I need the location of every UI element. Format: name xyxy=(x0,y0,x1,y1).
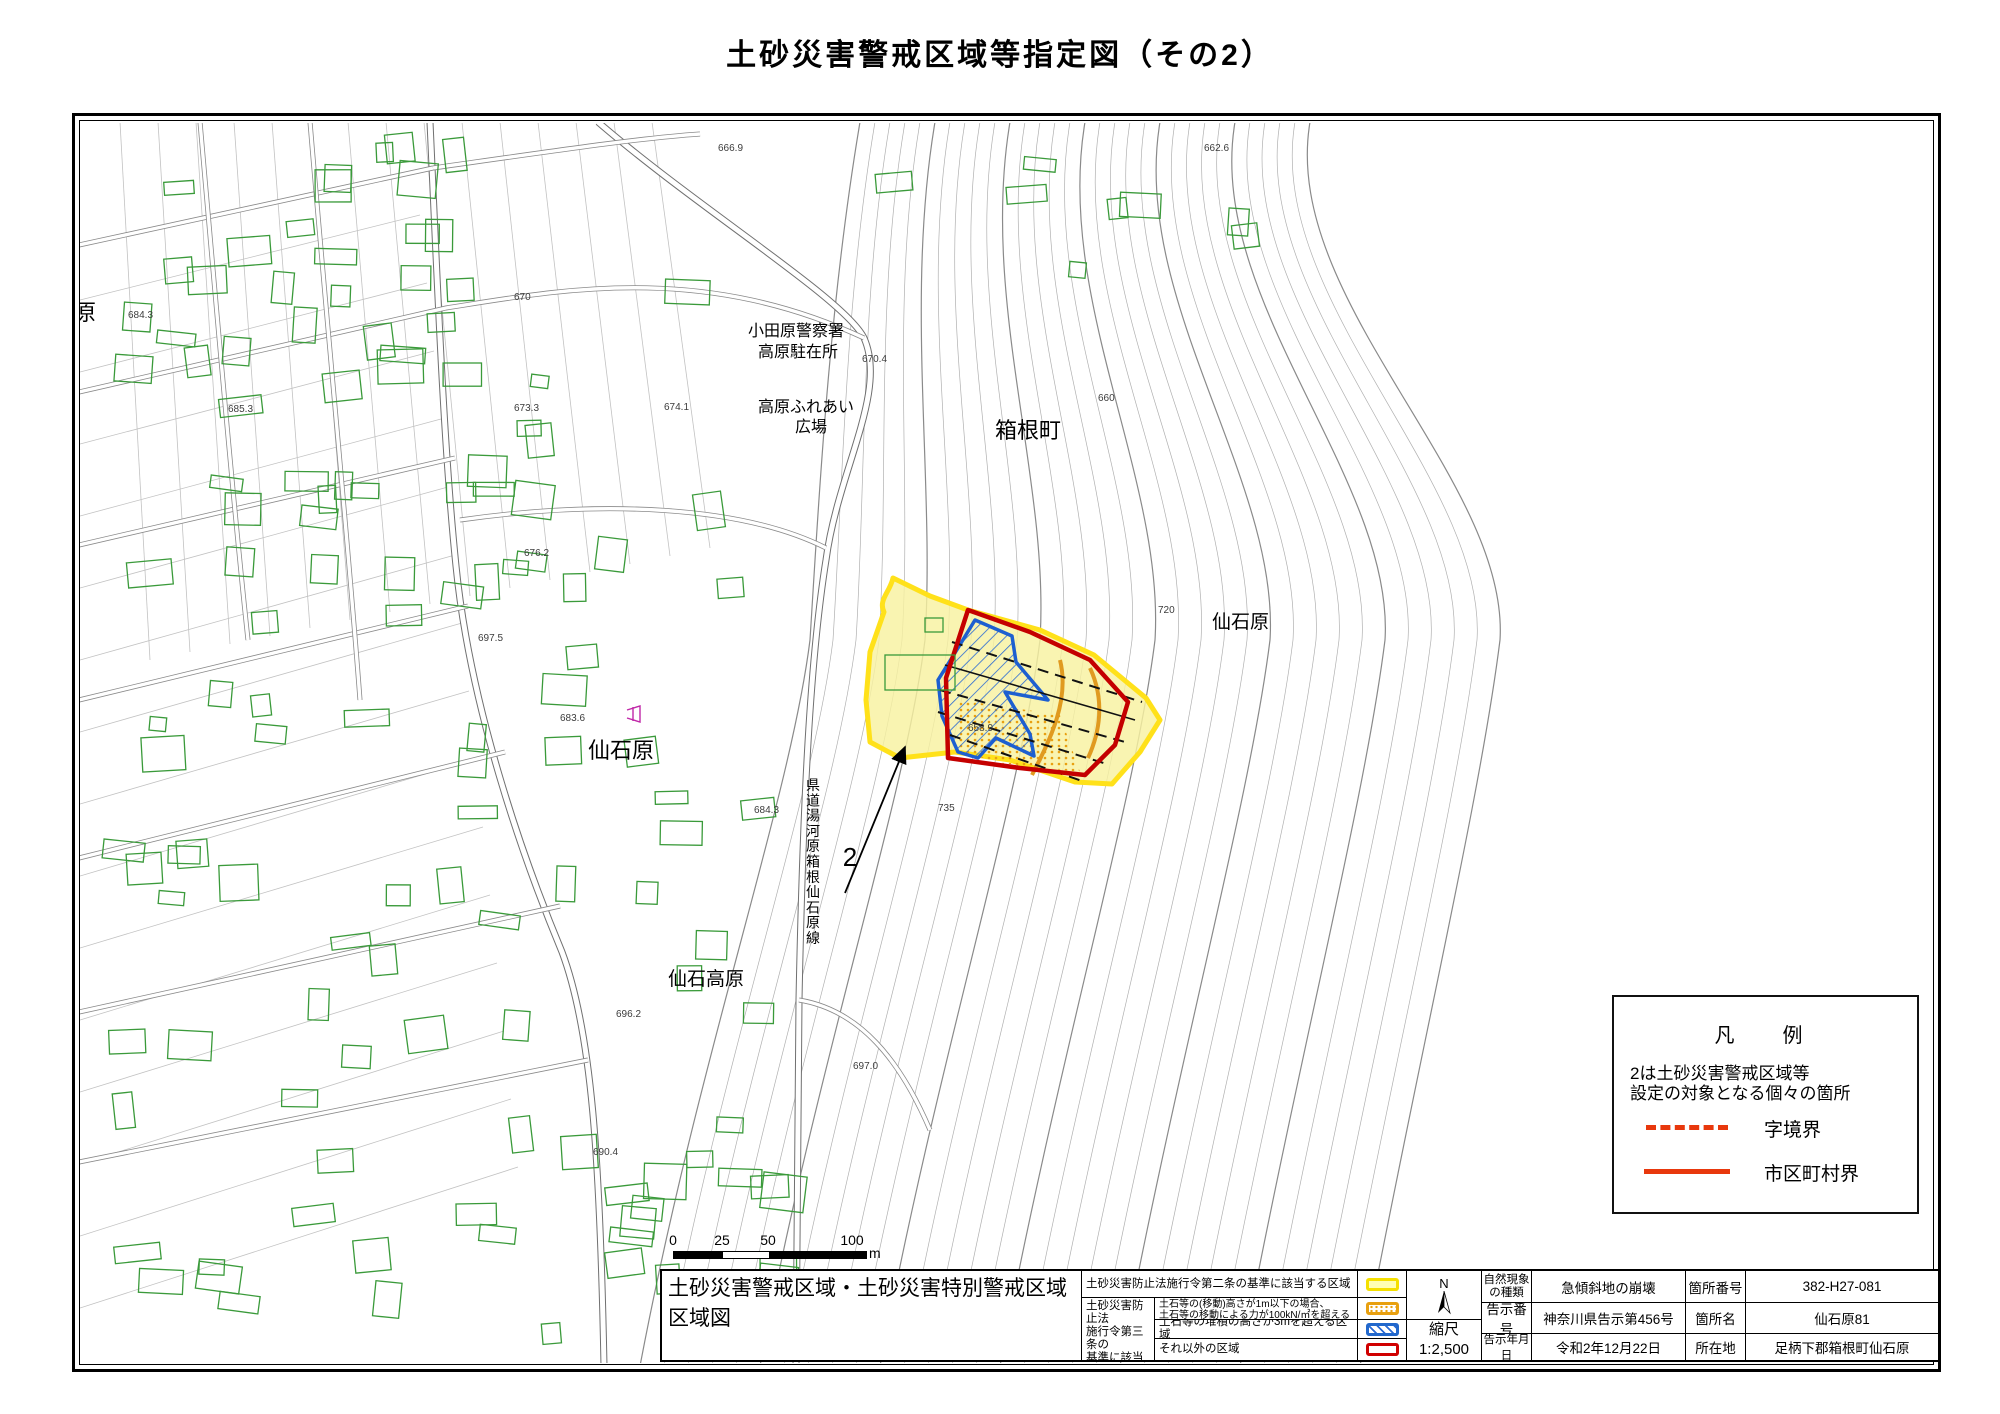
scale-tick-25: 25 xyxy=(714,1232,730,1248)
sheet-title-line2: 区域図 xyxy=(668,1304,1075,1334)
municipal-boundary-symbol xyxy=(1644,1169,1730,1174)
law2-cell: 土砂災害防止法施行令第二条の基準に該当する区域 xyxy=(1081,1271,1357,1297)
spot-elevation: 684.3 xyxy=(128,310,153,321)
orange-swatch-cell xyxy=(1357,1297,1406,1319)
label-sengoku-kogen: 仙石高原 xyxy=(668,968,744,990)
legend-title: 凡 例 xyxy=(1614,1019,1917,1048)
warning-area-swatch xyxy=(1366,1278,1399,1291)
contour-elevation: 735 xyxy=(938,803,955,814)
notice-date-value: 令和2年12月22日 xyxy=(1531,1333,1685,1360)
scale-bar: 0 25 50 100 m xyxy=(660,1232,900,1262)
label-police-line1: 小田原警察署 xyxy=(748,322,844,340)
hazard-zone xyxy=(845,578,1160,893)
phenomenon-key-line2: の種類 xyxy=(1489,1287,1524,1300)
label-police-line2: 高原駐在所 xyxy=(758,343,838,361)
hazard-map-sheet: { "title": "土砂災害警戒区域等指定図（その2）", "map": {… xyxy=(0,0,2000,1414)
spot-elevation: 660 xyxy=(1098,393,1115,404)
spot-elevation: 674.1 xyxy=(664,402,689,413)
scale-value: 1:2,500 xyxy=(1419,1340,1469,1360)
law3-group-cell: 土砂災害防止法 施行令第三条の 基準に該当する 区域 xyxy=(1081,1297,1154,1360)
sheet-title-line1: 土砂災害警戒区域・土砂災害特別警戒区域 xyxy=(668,1274,1075,1304)
spot-elevation: 670.4 xyxy=(862,354,887,365)
deposit-swatch xyxy=(1366,1323,1399,1336)
law3-line1: 土砂災害防止法 xyxy=(1086,1300,1150,1326)
aza-boundary-symbol xyxy=(1646,1125,1728,1130)
spot-elevation: 676.2 xyxy=(524,548,549,559)
notice-number-value: 神奈川県告示第456号 xyxy=(1531,1302,1685,1333)
notice-date-key: 告示年月日 xyxy=(1481,1333,1531,1360)
row4-text: それ以外の区域 xyxy=(1159,1343,1240,1356)
site-name-key: 箇所名 xyxy=(1685,1302,1745,1333)
site-number-value: 382-H27-081 xyxy=(1745,1271,1938,1302)
info-table: 土砂災害警戒区域・土砂災害特別警戒区域 区域図 土砂災害防止法施行令第二条の基準… xyxy=(660,1269,1940,1362)
legend-box: 凡 例 2は土砂災害警戒区域等 設定の対象となる個々の箇所 字境界 市区町村界 xyxy=(1612,995,1919,1214)
other-area-swatch xyxy=(1366,1343,1399,1356)
roads xyxy=(79,122,930,1366)
scale-tick-100: 100 xyxy=(840,1232,863,1248)
law2-text: 土砂災害防止法施行令第二条の基準に該当する区域 xyxy=(1086,1278,1351,1291)
spot-elevation: 670 xyxy=(514,292,531,303)
label-hara-partial: 原 xyxy=(74,300,96,325)
spot-elevation: 683.6 xyxy=(560,713,585,724)
spot-elevation: 697.5 xyxy=(478,633,503,644)
law3-line2: 施行令第三条の xyxy=(1086,1326,1150,1352)
row4-desc-cell: それ以外の区域 xyxy=(1154,1338,1357,1360)
law3-line3: 基準に該当する xyxy=(1086,1352,1150,1360)
spot-elevation: 697.0 xyxy=(853,1061,878,1072)
label-plaza-line2: 広場 xyxy=(795,418,827,436)
attr-key-cell: 自然現象 の種類 xyxy=(1481,1271,1531,1302)
sheet-title-cell: 土砂災害警戒区域・土砂災害特別警戒区域 区域図 xyxy=(662,1271,1081,1360)
row3-text: 土石等の堆積の高さが3mを超える区域 xyxy=(1159,1319,1353,1338)
shrine-symbol xyxy=(627,706,640,722)
spot-elevation: 673.3 xyxy=(514,403,539,414)
yellow-swatch-cell xyxy=(1357,1271,1406,1297)
label-prefectural-route: 県道湯河原箱根仙石原線 xyxy=(806,777,820,946)
label-plaza-line1: 高原ふれあい xyxy=(758,398,854,416)
north-label: N xyxy=(1439,1276,1448,1291)
scale-bar-graphic xyxy=(673,1251,867,1259)
spot-elevation: 666.9 xyxy=(718,143,743,154)
label-sengokuhara-east: 仙石原 xyxy=(1212,611,1269,633)
row2-line1: 土石等の(移動)高さが1m以下の場合、 xyxy=(1159,1299,1353,1310)
scale-label: 縮尺 xyxy=(1429,1320,1459,1340)
spot-elevation: 685.3 xyxy=(228,404,253,415)
location-value: 足柄下郡箱根町仙石原 xyxy=(1745,1333,1938,1360)
scale-unit: m xyxy=(869,1245,881,1261)
label-site-number: 2 xyxy=(843,842,857,872)
parcel-lines xyxy=(80,122,710,1308)
scale-tick-50: 50 xyxy=(760,1232,776,1248)
notice-number-key: 告示番号 xyxy=(1481,1302,1531,1333)
site-number-key: 箇所番号 xyxy=(1685,1271,1745,1302)
red-swatch-cell xyxy=(1357,1338,1406,1360)
row2-desc-cell: 土石等の(移動)高さが1m以下の場合、 土石等の移動による力が100kN/㎡を超… xyxy=(1154,1297,1357,1319)
scale-cell: 縮尺 1:2,500 xyxy=(1406,1319,1481,1360)
row2-line2: 土石等の移動による力が100kN/㎡を超える区域 xyxy=(1159,1310,1353,1319)
municipal-boundary-label: 市区町村界 xyxy=(1764,1159,1859,1186)
label-hakone-cho: 箱根町 xyxy=(995,418,1061,443)
scale-tick-0: 0 xyxy=(669,1232,677,1248)
site-name-value: 仙石原81 xyxy=(1745,1302,1938,1333)
phenomenon-key-line1: 自然現象 xyxy=(1484,1274,1530,1287)
legend-note-line2: 設定の対象となる個々の箇所 xyxy=(1630,1079,1851,1104)
debris-force-swatch xyxy=(1366,1302,1399,1315)
spot-elevation: 696.2 xyxy=(616,1009,641,1020)
location-key: 所在地 xyxy=(1685,1333,1745,1360)
row3-desc-cell: 土石等の堆積の高さが3mを超える区域 xyxy=(1154,1319,1357,1338)
spot-elevation: 690.4 xyxy=(593,1147,618,1158)
aza-boundary-label: 字境界 xyxy=(1764,1115,1821,1142)
compass-cell: N xyxy=(1406,1271,1481,1319)
contour-elevation: 720 xyxy=(1158,605,1175,616)
blue-swatch-cell xyxy=(1357,1319,1406,1338)
spot-elevation: 684.3 xyxy=(754,805,779,816)
spot-elevation: 662.6 xyxy=(1204,143,1229,154)
phenomenon-value: 急傾斜地の崩壊 xyxy=(1531,1271,1685,1302)
spot-elevation: 658.9 xyxy=(968,723,993,734)
north-arrow-icon xyxy=(1435,1291,1453,1315)
label-sengokuhara-west: 仙石原 xyxy=(588,738,654,763)
